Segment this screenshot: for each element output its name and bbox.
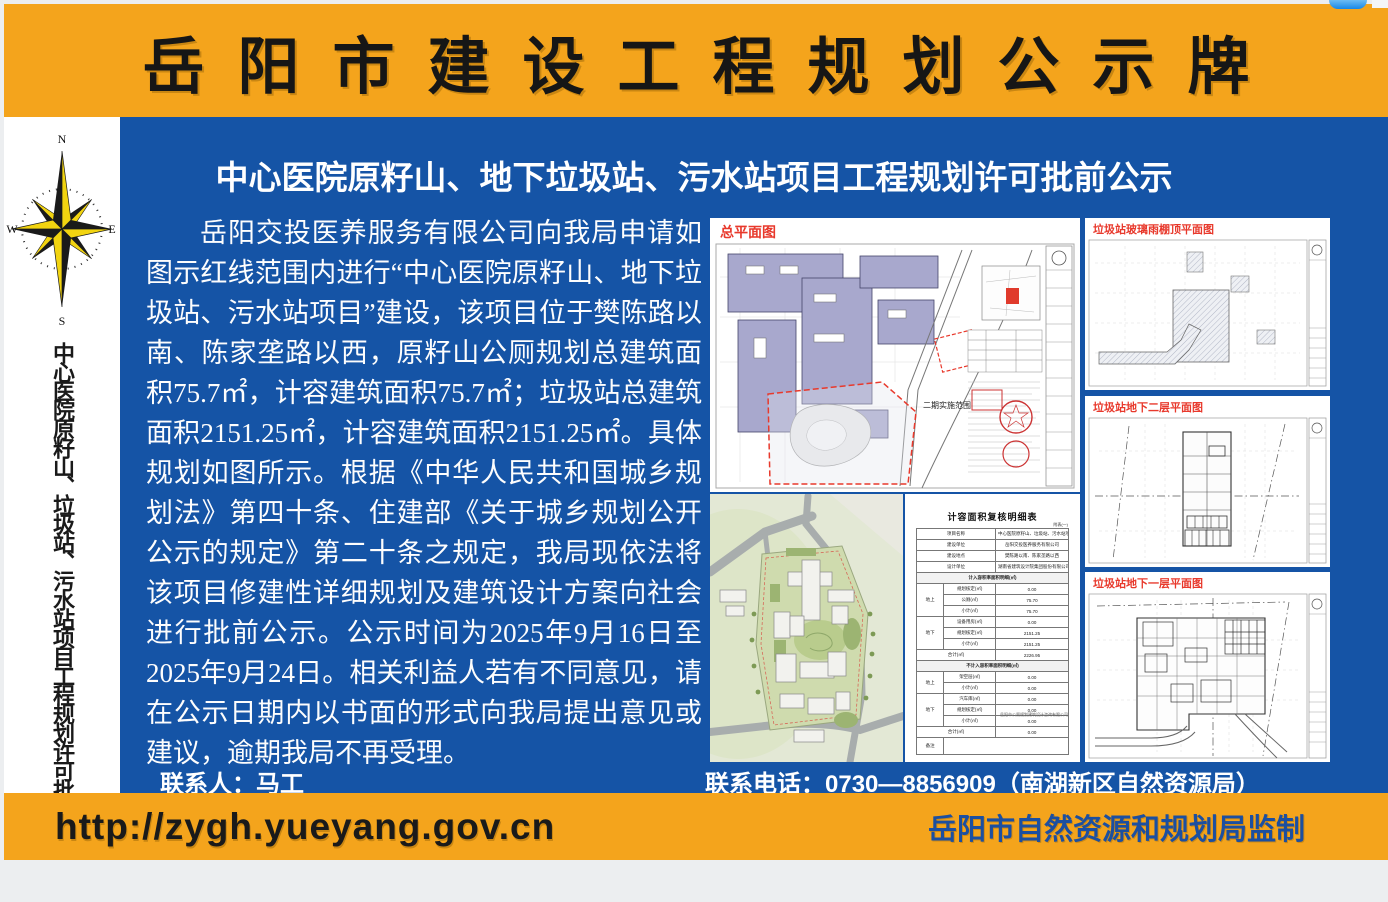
- compass-w: W: [6, 222, 18, 236]
- aerial-render-panel: [710, 494, 903, 762]
- area-table-body: 项目名称中心医院原籽山、垃圾站、污水站项目建设单位岳阳交投医养服务有限公司建设地…: [917, 529, 1069, 755]
- drawing-panels: 总平面图: [705, 215, 1345, 765]
- table-cell: 0.00: [996, 617, 1069, 628]
- table-cell: 备注: [917, 738, 944, 755]
- master-plan-drawing: 二期实施范围: [710, 242, 1080, 492]
- table-cell: [944, 738, 1069, 755]
- table-cell: 0.00: [996, 672, 1069, 683]
- table-cell: 汽车库(㎡): [944, 694, 996, 705]
- table-row: 不计入容积率面积明细(㎡): [917, 661, 1069, 672]
- table-cell: 合计(㎡): [917, 727, 996, 738]
- table-cell: 规划核定(㎡): [944, 705, 996, 716]
- basement2-plan-drawing: [1085, 416, 1330, 567]
- table-cell: 计入容积率面积明细(㎡): [917, 573, 1069, 584]
- table-cell: 设计单位: [917, 562, 996, 573]
- table-row: 地上规划核定(㎡)0.00: [917, 584, 1069, 595]
- table-cell: 中心医院原籽山、垃圾站、污水站项目: [996, 529, 1069, 540]
- table-row: 合计(㎡)0.00: [917, 727, 1069, 738]
- table-cell: 公厕(㎡): [944, 595, 996, 606]
- table-cell: 75.70: [996, 606, 1069, 617]
- table-cell: 地下: [917, 617, 944, 650]
- basement2-plan-panel: 垃圾站地下二层平面图: [1085, 396, 1330, 567]
- table-cell: 2151.25: [996, 628, 1069, 639]
- table-row: 地上架空层(㎡)0.00: [917, 672, 1069, 683]
- table-cell: 75.70: [996, 595, 1069, 606]
- footer-banner: http://zygh.yueyang.gov.cn 岳阳市自然资源和规划局监制: [4, 793, 1388, 860]
- table-row: 建设地点樊陈路以南、陈家垄路以西: [917, 551, 1069, 562]
- table-cell: 地下: [917, 694, 944, 727]
- table-cell: 0.00: [996, 727, 1069, 738]
- table-row: 地下设备用房(㎡)0.00: [917, 617, 1069, 628]
- area-table-panel: 计容面积复核明细表 附表(一) 项目名称中心医院原籽山、垃圾站、污水站项目建设单…: [905, 494, 1080, 762]
- table-cell: 0.00: [996, 694, 1069, 705]
- table-row: 建设单位岳阳交投医养服务有限公司: [917, 540, 1069, 551]
- table-cell: 0.00: [996, 584, 1069, 595]
- table-cell: 0.00: [996, 683, 1069, 694]
- basement1-plan-panel: 垃圾站地下一层平面图: [1085, 572, 1330, 762]
- table-cell: 小计(㎡): [944, 716, 996, 727]
- table-row: 备注: [917, 738, 1069, 755]
- table-row: 合计(㎡)2226.95: [917, 650, 1069, 661]
- basement1-plan-drawing: [1085, 592, 1330, 762]
- table-cell: 湖南省建筑设计院集团股份有限公司: [996, 562, 1069, 573]
- notice-title: 中心医院原籽山、地下垃圾站、污水站项目工程规划许可批前公示: [120, 151, 1388, 199]
- table-cell: 樊陈路以南、陈家垄路以西: [996, 551, 1069, 562]
- basement1-plan-label: 垃圾站地下一层平面图: [1093, 575, 1203, 591]
- area-table-footnote: 岳阳市公厕规划建筑设计咨询有限公司: [1000, 712, 1068, 718]
- table-cell: 建设地点: [917, 551, 996, 562]
- table-cell: 合计(㎡): [917, 650, 996, 661]
- table-cell: 小计(㎡): [944, 606, 996, 617]
- compass-icon: N S W E: [6, 129, 118, 334]
- table-cell: 架空层(㎡): [944, 672, 996, 683]
- compass-n: N: [58, 132, 67, 146]
- header-banner: 岳阳市建设工程规划公示牌: [4, 4, 1388, 117]
- table-cell: 小计(㎡): [944, 683, 996, 694]
- table-row: 计入容积率面积明细(㎡): [917, 573, 1069, 584]
- table-cell: 不计入容积率面积明细(㎡): [917, 661, 1069, 672]
- board-title: 岳阳市建设工程规划公示牌: [109, 16, 1282, 106]
- basement2-plan-label: 垃圾站地下二层平面图: [1093, 399, 1203, 415]
- corner-notch: [1372, 0, 1388, 8]
- roof-plan-label: 垃圾站玻璃雨棚顶平面图: [1093, 221, 1214, 237]
- table-cell: 小计(㎡): [944, 639, 996, 650]
- main-notice-area: 中心医院原籽山、地下垃圾站、污水站项目工程规划许可批前公示 岳阳交投医养服务有限…: [120, 117, 1388, 793]
- table-cell: 2226.95: [996, 650, 1069, 661]
- footer-url: http://zygh.yueyang.gov.cn: [55, 806, 555, 848]
- table-cell: 2151.25: [996, 639, 1069, 650]
- master-plan-panel: 总平面图: [710, 218, 1080, 492]
- table-cell: 岳阳交投医养服务有限公司: [996, 540, 1069, 551]
- table-cell: 地上: [917, 584, 944, 617]
- table-row: 项目名称中心医院原籽山、垃圾站、污水站项目: [917, 529, 1069, 540]
- table-row: 设计单位湖南省建筑设计院集团股份有限公司: [917, 562, 1069, 573]
- table-cell: 建设单位: [917, 540, 996, 551]
- area-table: 项目名称中心医院原籽山、垃圾站、污水站项目建设单位岳阳交投医养服务有限公司建设地…: [916, 528, 1069, 755]
- table-cell: 设备用房(㎡): [944, 617, 996, 628]
- compass-s: S: [59, 314, 66, 328]
- table-cell: 规划核定(㎡): [944, 584, 996, 595]
- aerial-render-image: [710, 494, 903, 762]
- roof-plan-panel: 垃圾站玻璃雨棚顶平面图: [1085, 218, 1330, 390]
- roof-plan-drawing: [1085, 238, 1330, 390]
- corner-tab: [1329, 0, 1367, 9]
- table-row: 地下汽车库(㎡)0.00: [917, 694, 1069, 705]
- compass-e: E: [108, 222, 115, 236]
- master-plan-label: 总平面图: [720, 222, 776, 242]
- sidebar: N S W E 中心医院原籽山、垃圾站、污水站项目工程规划许可批前公示: [4, 117, 120, 793]
- master-annotation: 二期实施范围: [923, 400, 971, 410]
- footer-supervisor: 岳阳市自然资源和规划局监制: [928, 806, 1305, 848]
- table-cell: 规划核定(㎡): [944, 628, 996, 639]
- table-cell: 地上: [917, 672, 944, 694]
- table-cell: 项目名称: [917, 529, 996, 540]
- notice-body: 岳阳交投医养服务有限公司向我局申请如图示红线范围内进行“中心医院原籽山、地下垃圾…: [146, 213, 702, 773]
